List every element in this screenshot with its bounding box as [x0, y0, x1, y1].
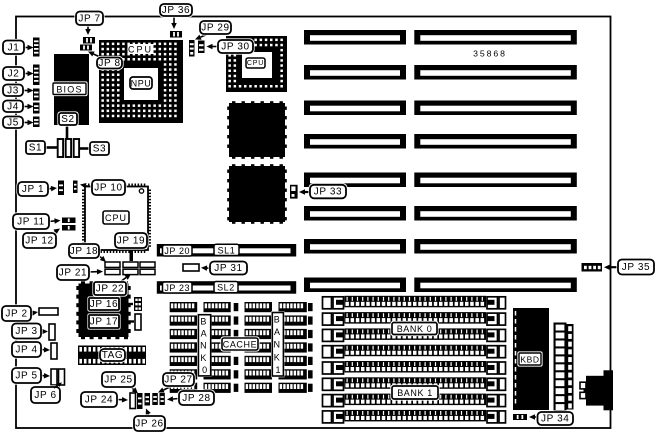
svg-text:J1: J1: [8, 42, 20, 53]
svg-text:JP 22: JP 22: [96, 284, 124, 295]
svg-text:CACHE: CACHE: [223, 340, 258, 350]
svg-text:TAG: TAG: [102, 350, 124, 361]
svg-text:JP 2: JP 2: [5, 309, 27, 320]
svg-text:JP 8: JP 8: [98, 58, 120, 69]
svg-text:JP 16: JP 16: [90, 299, 118, 310]
svg-text:JP 31: JP 31: [214, 263, 242, 274]
svg-text:JP 5: JP 5: [15, 371, 37, 382]
svg-text:JP 28: JP 28: [182, 393, 210, 404]
svg-text:JP 33: JP 33: [314, 187, 342, 198]
svg-text:JP 30: JP 30: [221, 42, 249, 53]
svg-text:JP 19: JP 19: [117, 236, 145, 247]
svg-text:JP 36: JP 36: [162, 5, 190, 16]
svg-text:JP 10: JP 10: [94, 183, 122, 194]
svg-text:JP 29: JP 29: [201, 23, 229, 34]
svg-text:BANK 1: BANK 1: [397, 388, 433, 398]
svg-text:JP 17: JP 17: [90, 317, 118, 328]
svg-text:JP 24: JP 24: [85, 395, 113, 406]
svg-text:CPU: CPU: [128, 45, 153, 55]
svg-text:J2: J2: [8, 69, 20, 80]
svg-text:JP 11: JP 11: [17, 217, 45, 228]
svg-text:J3: J3: [7, 85, 19, 96]
svg-text:S3: S3: [93, 144, 106, 155]
svg-text:CPU: CPU: [247, 60, 264, 67]
svg-text:JP 4: JP 4: [15, 345, 37, 356]
svg-text:SL2: SL2: [217, 283, 235, 293]
svg-text:CPU: CPU: [105, 213, 127, 223]
svg-text:BANK 0: BANK 0: [397, 324, 433, 334]
svg-text:35868: 35868: [473, 49, 507, 59]
svg-text:J5: J5: [7, 117, 19, 128]
svg-text:JP 12: JP 12: [25, 236, 53, 247]
svg-text:JP 23: JP 23: [164, 283, 190, 293]
svg-text:JP 18: JP 18: [70, 246, 98, 257]
svg-text:NPU: NPU: [131, 79, 152, 89]
svg-text:JP 25: JP 25: [104, 375, 132, 386]
svg-text:S1: S1: [29, 143, 42, 154]
svg-text:JP 34: JP 34: [541, 414, 569, 425]
svg-text:SL1: SL1: [218, 245, 236, 255]
svg-text:JP 21: JP 21: [59, 268, 87, 279]
svg-text:JP 7: JP 7: [78, 13, 100, 24]
svg-text:JP 26: JP 26: [135, 419, 163, 430]
svg-text:KBD: KBD: [520, 355, 539, 365]
svg-text:JP 35: JP 35: [622, 262, 650, 273]
svg-text:JP 6: JP 6: [34, 390, 56, 401]
svg-text:BIOS: BIOS: [56, 84, 82, 94]
svg-text:J4: J4: [7, 101, 19, 112]
svg-text:JP 27: JP 27: [164, 375, 192, 386]
svg-text:S2: S2: [61, 114, 74, 125]
svg-text:JP 1: JP 1: [22, 184, 44, 195]
svg-text:JP 3: JP 3: [15, 326, 37, 337]
svg-text:JP 20: JP 20: [164, 246, 190, 256]
